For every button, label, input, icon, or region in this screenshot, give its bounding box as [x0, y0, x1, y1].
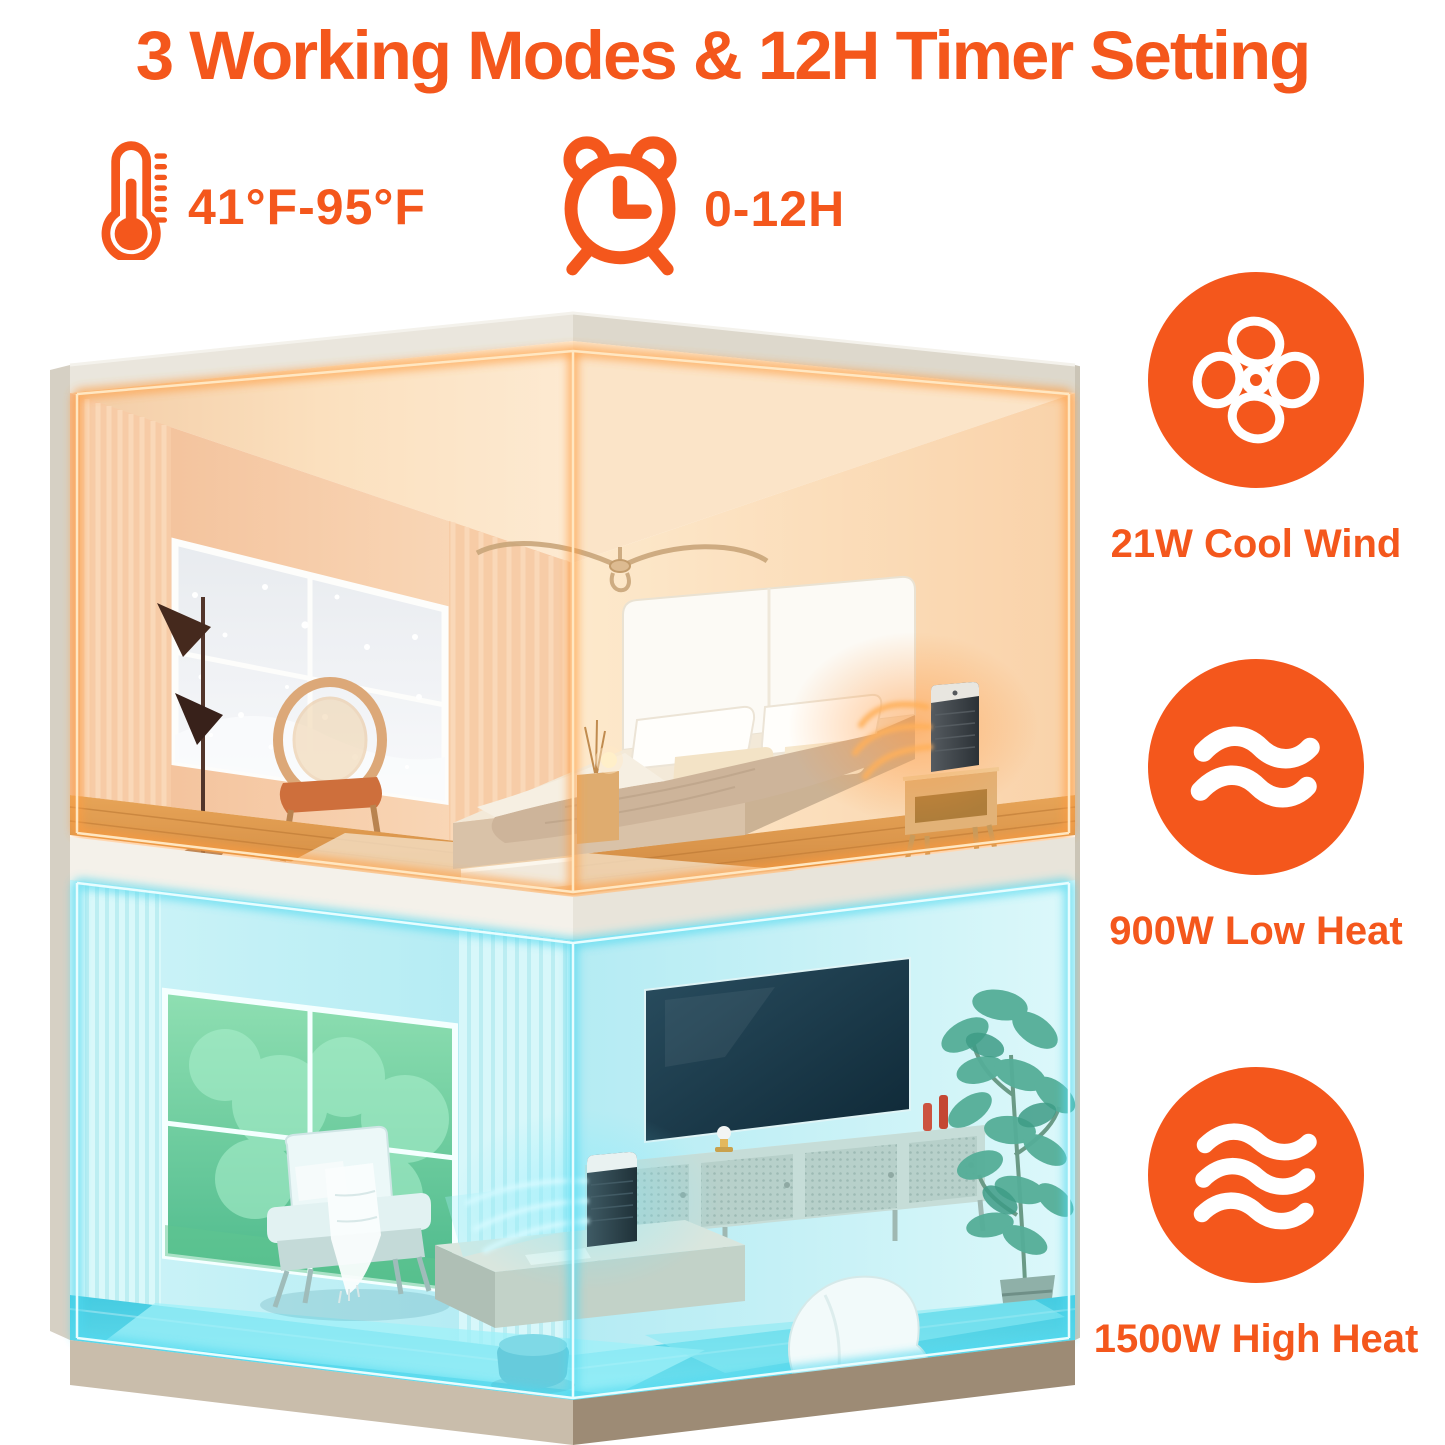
feature-label: 21W Cool Wind — [1076, 522, 1436, 567]
feature-label: 1500W High Heat — [1076, 1317, 1436, 1362]
building-right-wall-edge — [1075, 365, 1080, 1340]
room-scene-illustration — [25, 295, 1080, 1445]
alarm-clock-icon — [548, 128, 692, 278]
thermometer-icon — [92, 134, 180, 260]
page: { "title": "3 Working Modes & 12H Timer … — [0, 0, 1445, 1445]
page-title: 3 Working Modes & 12H Timer Setting — [0, 16, 1445, 95]
feature-cool-wind: 21W Cool Wind — [1076, 272, 1436, 567]
pouf-ottoman — [491, 1334, 575, 1394]
bottom-room-living-room — [70, 880, 1080, 1409]
timer-range-value: 0-12H — [704, 180, 845, 238]
feature-high-heat: 1500W High Heat — [1076, 1067, 1436, 1362]
wall-tv — [645, 958, 910, 1142]
heat-wave-3-icon — [1148, 1067, 1364, 1283]
building-left-wall-edge — [50, 365, 70, 1340]
feature-label: 900W Low Heat — [1076, 909, 1436, 954]
space-heater-living-room — [587, 1152, 637, 1247]
fan-icon — [1148, 272, 1364, 488]
top-room-bedroom — [70, 341, 1075, 917]
heat-wave-2-icon — [1148, 659, 1364, 875]
temperature-range-value: 41°F-95°F — [188, 178, 426, 236]
space-heater-bedroom — [931, 682, 979, 772]
feature-low-heat: 900W Low Heat — [1076, 659, 1436, 954]
